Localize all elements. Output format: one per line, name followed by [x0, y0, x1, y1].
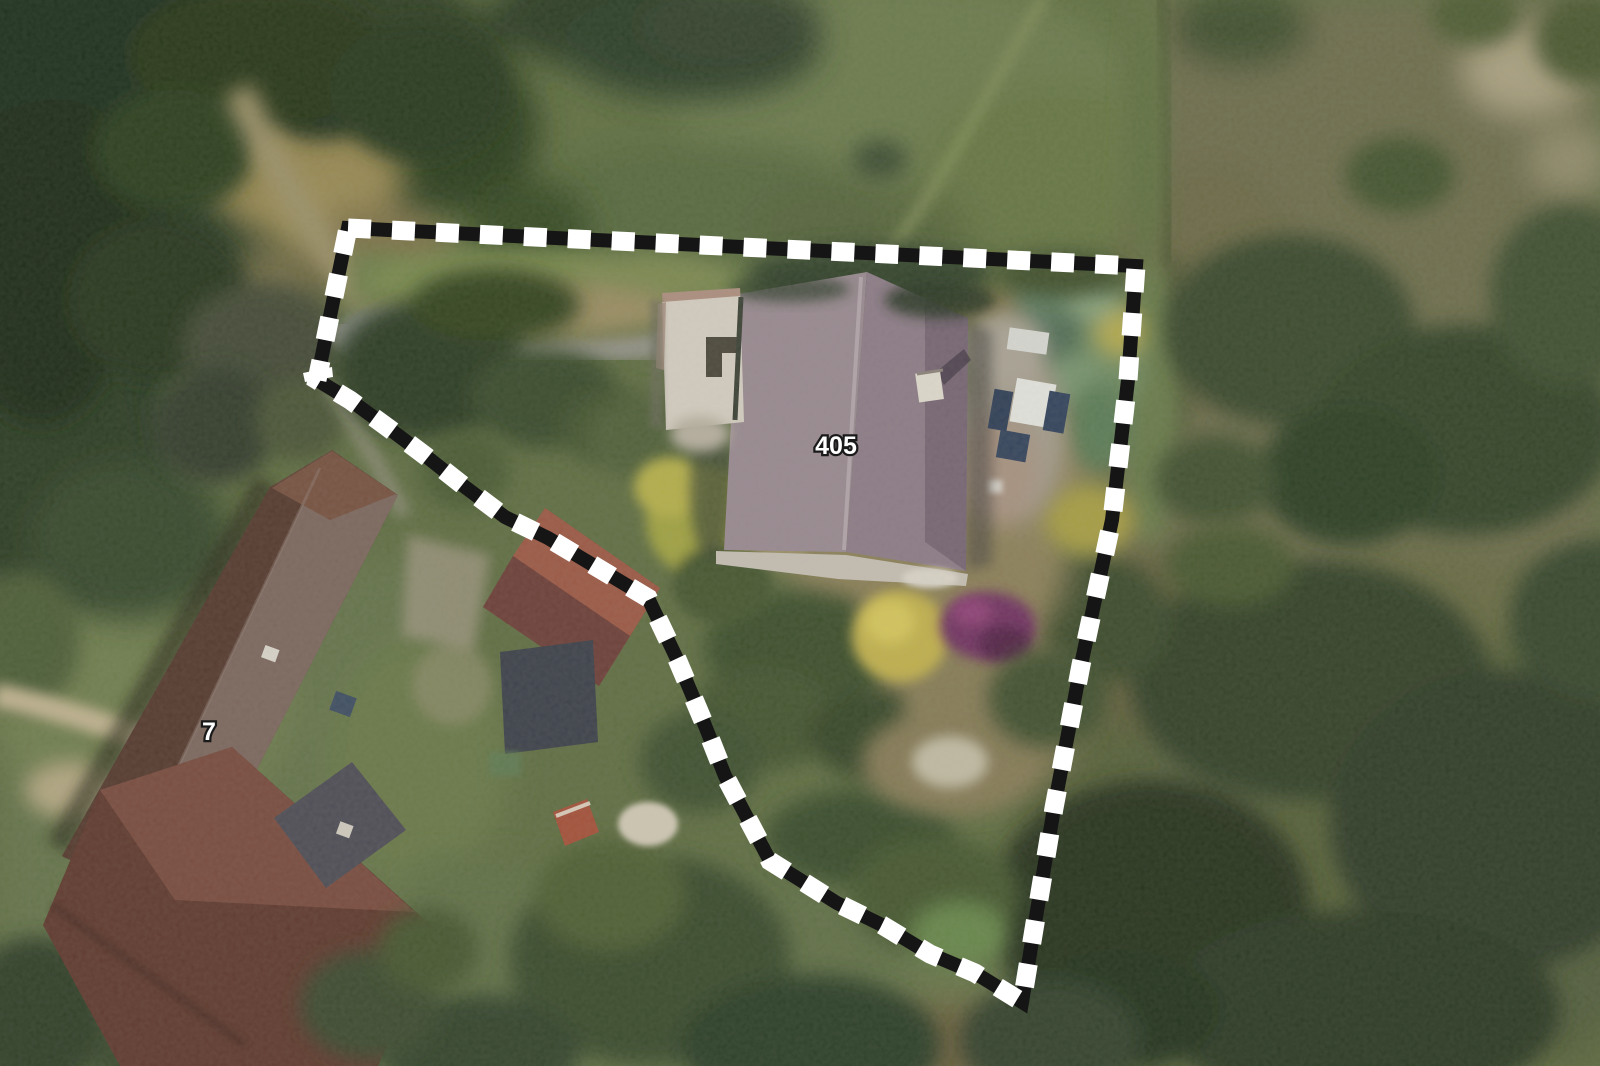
- svg-text:405: 405: [815, 432, 857, 460]
- svg-text:7: 7: [202, 718, 216, 746]
